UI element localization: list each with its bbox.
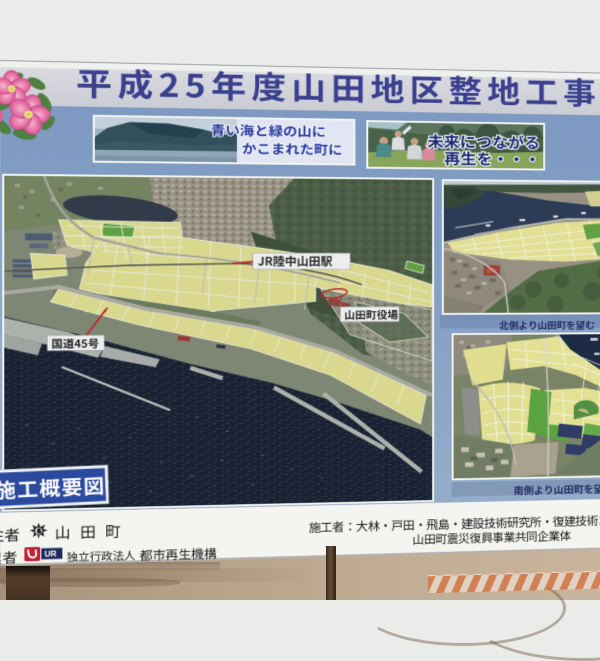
svg-text:青い海と緑の山に: 青い海と緑の山に (211, 120, 326, 141)
svg-text:かこまれた町に: かこまれた町に (242, 139, 342, 159)
svg-text:UR: UR (44, 550, 56, 559)
svg-text:再生を・・・: 再生を・・・ (444, 147, 540, 169)
